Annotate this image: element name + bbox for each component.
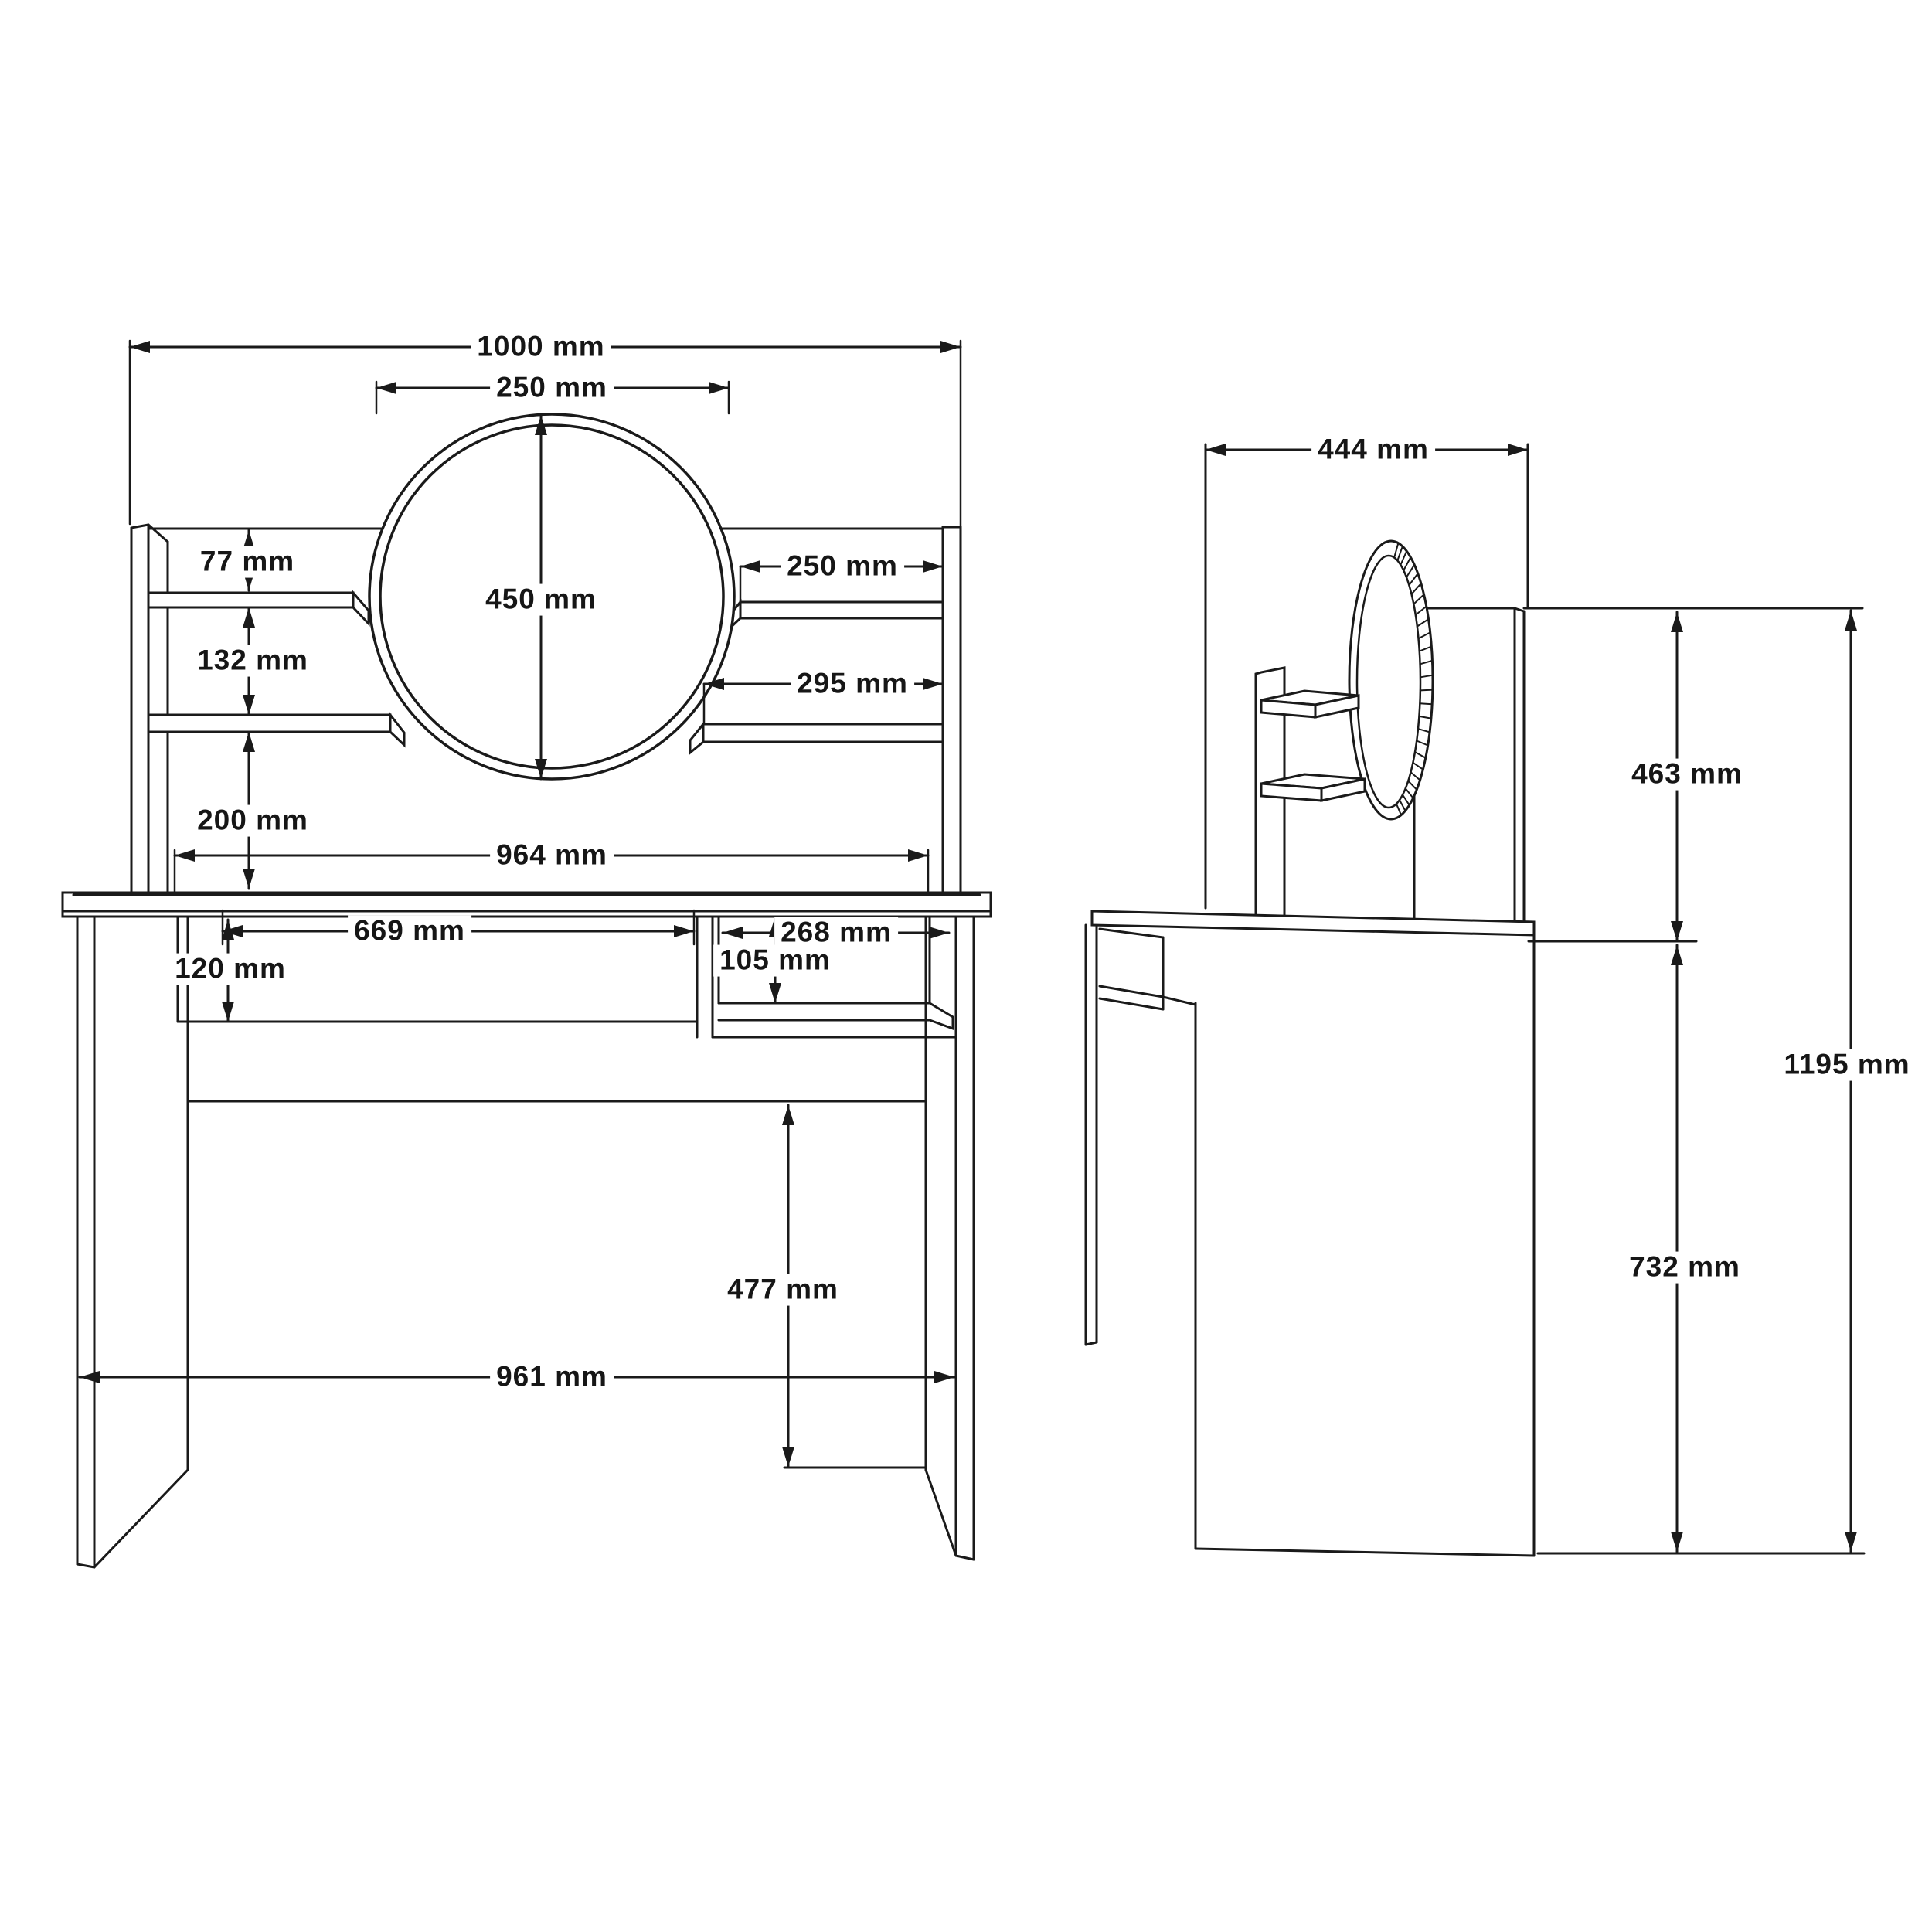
dim-hutch-height: 463 mm — [1625, 759, 1749, 791]
dimension-label-layer: 1000 mm250 mm450 mm77 mm132 mm200 mm250 … — [0, 0, 1932, 1932]
dim-inner-leg-span: 961 mm — [490, 1362, 614, 1393]
dim-lower-gap: 200 mm — [191, 805, 315, 837]
dim-top-gap: 77 mm — [194, 546, 301, 578]
dim-mirror-diameter: 450 mm — [479, 584, 603, 616]
dim-inner-width: 964 mm — [490, 840, 614, 872]
dim-depth: 444 mm — [1311, 434, 1435, 466]
dim-mirror-offset-top: 250 mm — [490, 372, 614, 404]
technical-drawing-canvas: 1000 mm250 mm450 mm77 mm132 mm200 mm250 … — [0, 0, 1932, 1932]
dim-drawer-width: 669 mm — [348, 916, 471, 947]
dim-total-height: 1195 mm — [1777, 1049, 1916, 1081]
dim-right-shelf-lower: 295 mm — [791, 668, 914, 700]
dim-cubby-height: 105 mm — [713, 945, 837, 977]
dim-desk-height: 732 mm — [1623, 1252, 1747, 1284]
dim-right-shelf-upper: 250 mm — [781, 551, 904, 583]
dim-shelf-gap: 132 mm — [191, 645, 315, 677]
dim-overall-width: 1000 mm — [471, 332, 611, 363]
dim-drawer-height: 120 mm — [168, 954, 292, 985]
dim-leg-clearance: 477 mm — [721, 1274, 845, 1306]
